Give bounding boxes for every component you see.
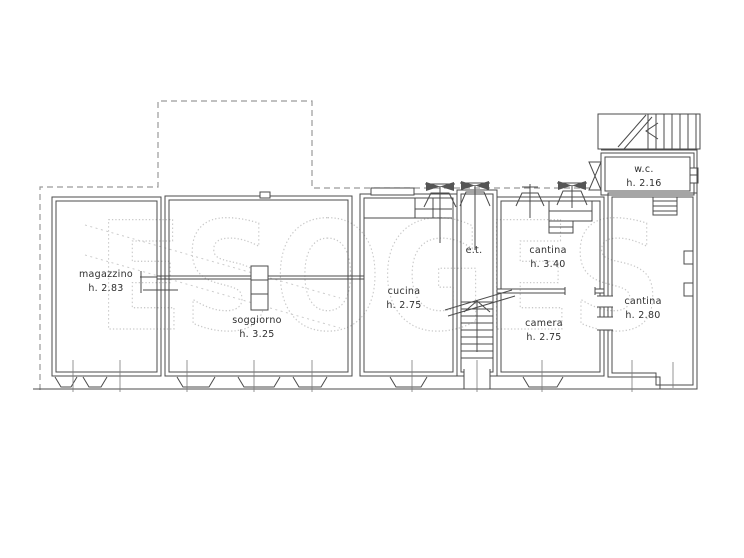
room-label-wc: w.c. h. 2.16 xyxy=(626,163,661,191)
room-label-cantina-2: cantina h. 2.80 xyxy=(624,295,661,323)
room-name: soggiorno xyxy=(232,314,282,328)
wc-door-icon xyxy=(589,162,601,190)
room-height: h. 2.75 xyxy=(386,299,421,313)
watermark: ESOGES xyxy=(85,191,662,365)
room-label-cantina-1: cantina h. 3.40 xyxy=(529,244,566,272)
room-name: camera xyxy=(525,317,563,331)
room-label-magazzino: magazzino h. 2.83 xyxy=(79,268,133,296)
room-height: h. 2.83 xyxy=(79,282,133,296)
room-label-soggiorno: soggiorno h. 3.25 xyxy=(232,314,282,342)
room-height: h. 2.16 xyxy=(626,177,661,191)
chimney-pillar xyxy=(251,266,268,310)
cantina2-wall-niches xyxy=(684,251,693,296)
room-height: h. 3.40 xyxy=(529,258,566,272)
room-name: magazzino xyxy=(79,268,133,282)
room-label-cucina: cucina h. 2.75 xyxy=(386,285,421,313)
bottom-window-wells xyxy=(55,377,563,387)
room-label-camera: camera h. 2.75 xyxy=(525,317,563,345)
room-name: e.t. xyxy=(466,244,483,258)
room-name: w.c. xyxy=(626,163,661,177)
room-height: h. 3.25 xyxy=(232,328,282,342)
room-name: cucina xyxy=(386,285,421,299)
room-height: h. 2.75 xyxy=(525,331,563,345)
floor-plan-canvas: ESOGES xyxy=(0,0,744,558)
room-height: h. 2.80 xyxy=(624,309,661,323)
room-name: cantina xyxy=(529,244,566,258)
room-name: cantina xyxy=(624,295,661,309)
room-label-et: e.t. xyxy=(466,244,483,258)
watermark-text: ESOGES xyxy=(97,191,662,365)
